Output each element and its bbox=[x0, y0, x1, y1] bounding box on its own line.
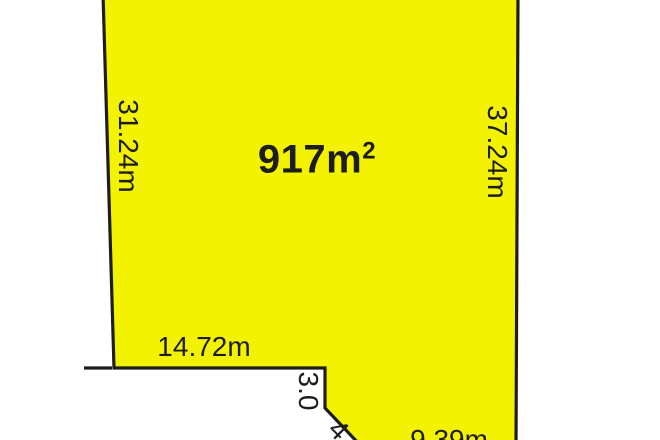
area-label: 917m2 bbox=[258, 138, 376, 183]
lot-diagram: 31.24m 37.24m 917m2 14.72m 3.0 4. 9.39m bbox=[0, 0, 660, 440]
dimension-step-label: 3.0 bbox=[292, 372, 324, 411]
dimension-bottom-right-label: 9.39m bbox=[410, 424, 488, 440]
lot-shape-svg bbox=[0, 0, 660, 440]
dimension-bottom-label: 14.72m bbox=[157, 331, 250, 363]
dimension-right-label: 37.24m bbox=[481, 105, 513, 198]
dimension-left-label: 31.24m bbox=[112, 99, 144, 192]
area-value: 917m bbox=[258, 138, 362, 182]
area-superscript: 2 bbox=[362, 138, 376, 165]
